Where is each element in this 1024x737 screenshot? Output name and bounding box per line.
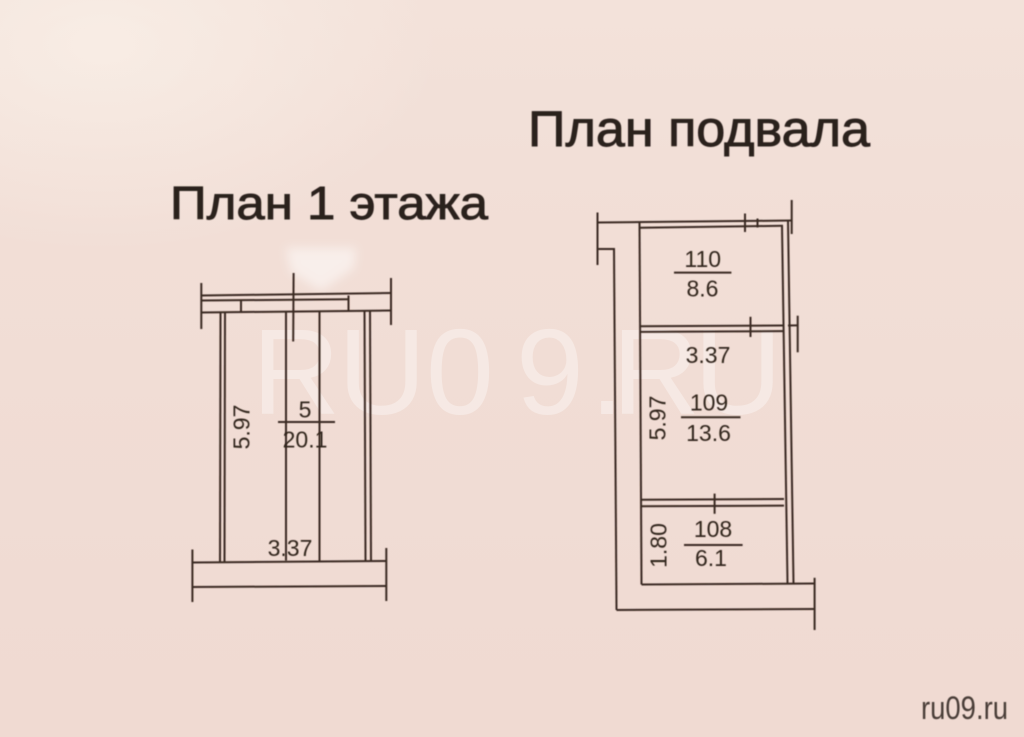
svg-text:5.97: 5.97 (229, 405, 255, 450)
svg-text:20.1: 20.1 (283, 427, 328, 453)
svg-text:5.97: 5.97 (645, 396, 671, 441)
svg-text:1.80: 1.80 (646, 523, 672, 568)
svg-text:109: 109 (690, 390, 728, 416)
svg-text:План подвала: План подвала (528, 101, 870, 157)
svg-text:8.6: 8.6 (687, 276, 719, 302)
svg-text:3.37: 3.37 (686, 342, 731, 368)
svg-text:108: 108 (694, 516, 732, 542)
svg-text:13.6: 13.6 (686, 420, 731, 446)
svg-text:110: 110 (684, 246, 721, 272)
svg-text:План 1 этажа: План 1 этажа (170, 177, 488, 229)
svg-text:3.37: 3.37 (268, 535, 313, 561)
svg-text:6.1: 6.1 (695, 545, 727, 571)
svg-text:ru09.ru: ru09.ru (921, 690, 1008, 726)
svg-text:5: 5 (299, 397, 312, 423)
